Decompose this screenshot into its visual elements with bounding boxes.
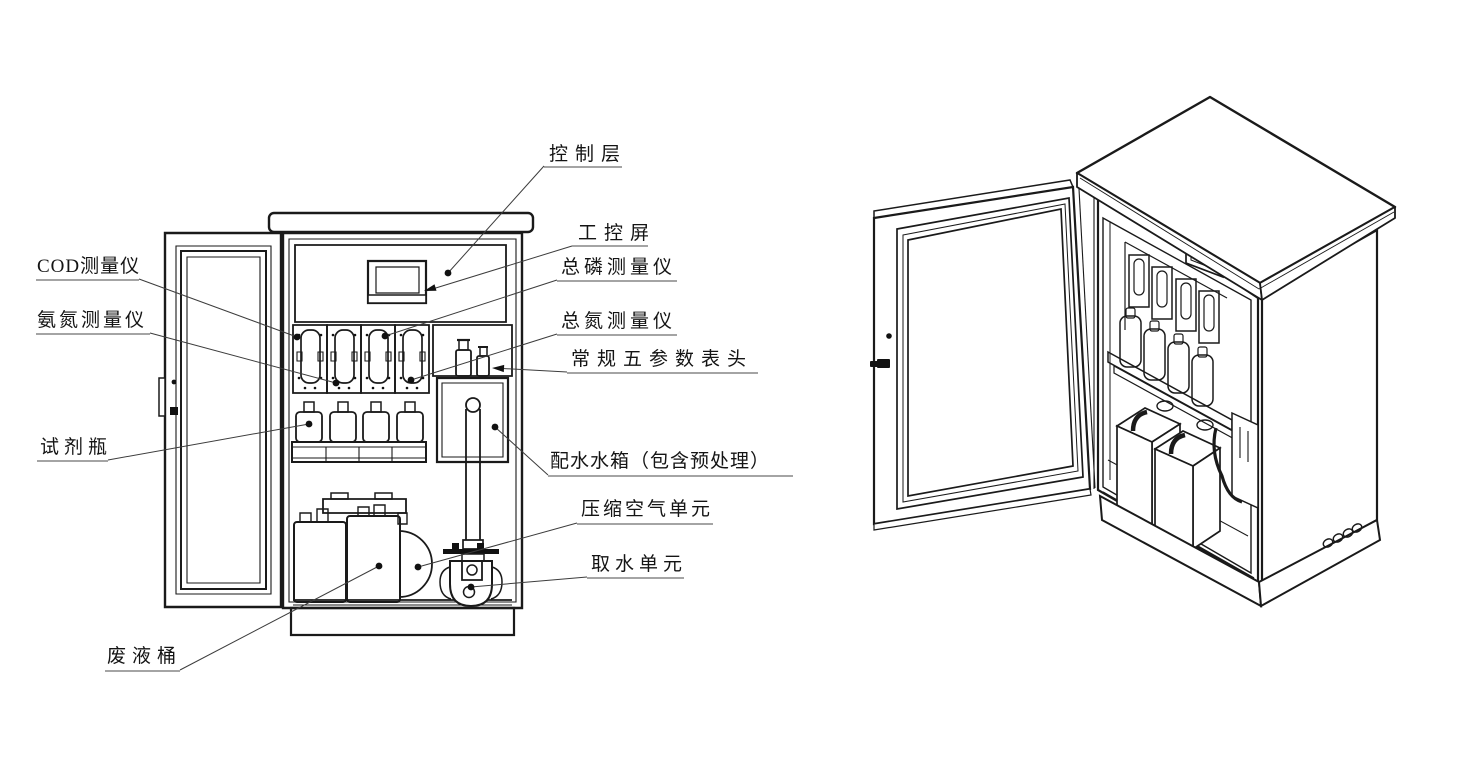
- label-reagent-bottle: 试剂瓶: [40, 436, 112, 459]
- label-water-tank: 配水水箱（包含预处理）: [550, 450, 770, 473]
- door-lock: [170, 407, 178, 415]
- label-cod-analyzer: COD测量仪: [37, 255, 140, 278]
- front-door: [159, 233, 281, 607]
- label-five-param-meter: 常规五参数表头: [571, 348, 753, 371]
- iso-door-handle: [877, 359, 890, 368]
- line-art: [0, 0, 1464, 758]
- door-handle: [159, 378, 165, 416]
- label-nh3n-analyzer: 氨氮测量仪: [37, 309, 147, 332]
- control-panel: [295, 245, 506, 322]
- iso-view: [870, 97, 1395, 606]
- diagram-canvas: 控制层 工控屏 总磷测量仪 总氮测量仪 常规五参数表头 配水水箱（包含预处理） …: [0, 0, 1464, 758]
- label-underlines: [36, 167, 793, 671]
- analyzer-module-3: [361, 325, 395, 393]
- label-waste-barrel: 废液桶: [107, 645, 182, 668]
- analyzer-module-2: [327, 325, 361, 393]
- leader-lines: [36, 166, 793, 671]
- label-water-intake: 取水单元: [591, 553, 687, 576]
- waste-cans-front: [294, 493, 407, 602]
- iso-door-lock-dot: [886, 333, 892, 339]
- front-view: [159, 213, 533, 635]
- label-control-layer: 控制层: [549, 143, 627, 166]
- leader-dots: [294, 270, 505, 591]
- label-tp-analyzer: 总磷测量仪: [561, 256, 676, 279]
- label-industrial-screen: 工控屏: [578, 222, 656, 245]
- label-tn-analyzer: 总氮测量仪: [561, 310, 676, 333]
- analyzer-modules: [293, 325, 429, 393]
- front-base: [291, 608, 514, 635]
- reagent-shelf: [292, 402, 426, 462]
- door-lock-dot: [172, 380, 177, 385]
- water-tank-front: [437, 378, 508, 549]
- leader-arrow-probe: [492, 365, 504, 372]
- iso-door: [870, 180, 1095, 530]
- label-air-unit: 压缩空气单元: [581, 498, 713, 521]
